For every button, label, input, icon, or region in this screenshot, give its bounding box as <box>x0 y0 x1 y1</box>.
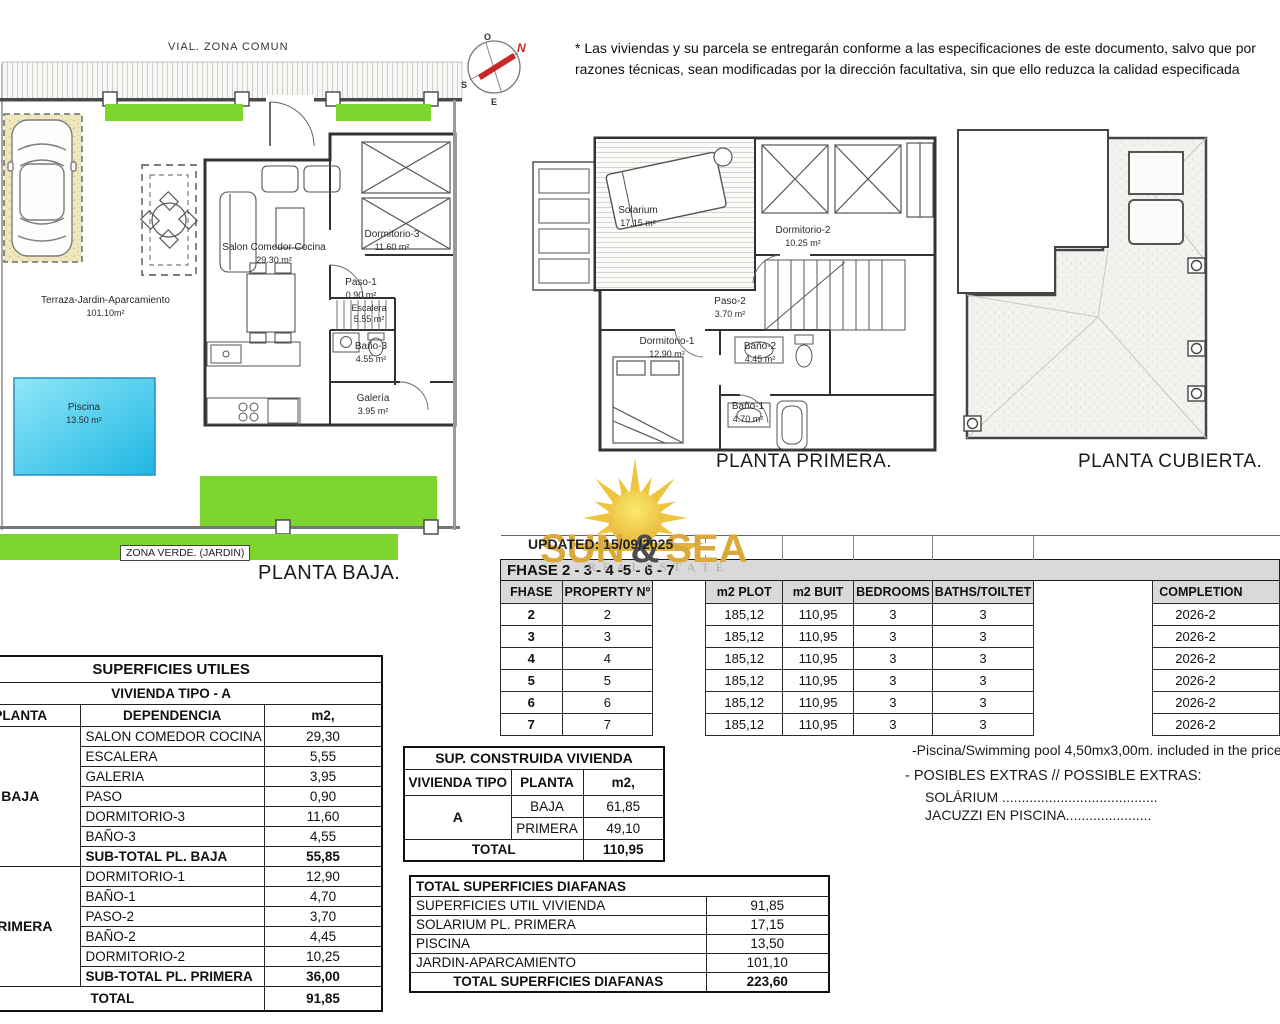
su-val: 10,25 <box>264 946 382 966</box>
su-val: 4,45 <box>264 926 382 946</box>
cell-fhase: 3 <box>501 626 563 648</box>
compass-o: O <box>484 32 491 42</box>
cell-built: 110,95 <box>783 692 854 714</box>
su-dep: BAÑO-2 <box>80 926 264 946</box>
car-icon <box>8 120 76 256</box>
phase-row: 3 3 185,12 110,95 3 3 2026-2 <box>501 626 1280 648</box>
plot-boundary-right <box>453 100 456 530</box>
cell-fhase: 7 <box>501 714 563 736</box>
su-dep: DORMITORIO-1 <box>80 866 264 886</box>
di-val: 13,50 <box>706 934 829 953</box>
green-strip-right <box>336 104 431 121</box>
sc-val: 49,10 <box>583 817 664 839</box>
cell-plot: 185,12 <box>706 714 783 736</box>
sc-total-label: TOTAL <box>404 839 583 861</box>
phase-row: 4 4 185,12 110,95 3 3 2026-2 <box>501 648 1280 670</box>
sc-header-row: VIVIENDA TIPO PLANTA m2, <box>404 769 664 795</box>
col-header-property: PROPERTY Nº <box>562 581 653 604</box>
disclaimer-line-2: razones técnicas, sean modificadas por l… <box>575 59 1280 80</box>
room-label-bano2: Baño-2 4.45 m² <box>722 341 798 365</box>
plan-sheet: * Las viviendas y su parcela se entregar… <box>0 0 1280 1024</box>
cell-baths: 3 <box>932 648 1034 670</box>
cell-completion: 2026-2 <box>1153 692 1280 714</box>
room-label-bano1: Baño-1 4.70 m² <box>712 401 784 425</box>
sc-col-m2: m2, <box>583 769 664 795</box>
sc-total-row: TOTAL 110,95 <box>404 839 664 861</box>
su-val: 0,90 <box>264 786 382 806</box>
col-header-built: m2 BUIT <box>783 581 854 604</box>
updated-date: UPDATED: 15/09/2025 <box>528 536 673 552</box>
su-dep: PASO <box>80 786 264 806</box>
cell-fhase: 5 <box>501 670 563 692</box>
skylight-1 <box>1129 152 1183 194</box>
diafanas-table: TOTAL SUPERFICIES DIAFANAS SUPERFICIES U… <box>409 875 830 993</box>
di-label: SUPERFICIES UTIL VIVIENDA <box>410 896 706 915</box>
logo-subtitle: R E A L E S T A T E <box>588 560 725 574</box>
room-label-dorm3: Dormitorio-3 11.60 m² <box>342 229 442 253</box>
su-dep: ESCALERA <box>80 746 264 766</box>
phase-row: 2 2 185,12 110,95 3 3 2026-2 <box>501 604 1280 626</box>
planta-cubierta-title: PLANTA CUBIERTA. <box>1078 451 1262 473</box>
cell-bedrooms: 3 <box>854 670 933 692</box>
front-wall <box>0 98 462 102</box>
su-dep: GALERIA <box>80 766 264 786</box>
room-label-escalera: Escalera 5.55 m² <box>336 303 402 326</box>
su-total-val: 91,85 <box>264 986 382 1011</box>
cell-baths: 3 <box>932 670 1034 692</box>
compass-icon: O N S E <box>461 32 526 107</box>
su-subtotal-val: 55,85 <box>264 846 382 866</box>
di-title: TOTAL SUPERFICIES DIAFANAS <box>410 876 829 896</box>
compass-needle <box>478 53 516 80</box>
su-total-label: TOTAL <box>0 986 264 1011</box>
room-label-piscina: Piscina 13.50 m² <box>39 402 129 426</box>
room-label-dorm2: Dormitorio-2 10.25 m² <box>748 225 858 249</box>
cell-built: 110,95 <box>783 604 854 626</box>
zona-verde-label: ZONA VERDE. (JARDIN) <box>120 545 250 561</box>
col-header-bedrooms: BEDROOMS <box>854 581 933 604</box>
cell-plot: 185,12 <box>706 648 783 670</box>
cell-property: 5 <box>562 670 653 692</box>
cell-plot: 185,12 <box>706 670 783 692</box>
room-label-paso2: Paso-2 3.70 m² <box>695 296 765 320</box>
disclaimer-line-1: * Las viviendas y su parcela se entregar… <box>575 38 1280 59</box>
cell-fhase: 6 <box>501 692 563 714</box>
su-val: 29,30 <box>264 726 382 746</box>
su-row: PRIMERA DORMITORIO-1 12,90 <box>0 866 382 886</box>
di-label: SOLARIUM PL. PRIMERA <box>410 915 706 934</box>
room-label-paso1: Paso-1 0.90 m² <box>325 277 397 301</box>
note-extras: - POSIBLES EXTRAS // POSSIBLE EXTRAS: <box>905 768 1202 784</box>
su-dep: DORMITORIO-2 <box>80 946 264 966</box>
su-val: 4,70 <box>264 886 382 906</box>
cell-property: 6 <box>562 692 653 714</box>
cell-bedrooms: 3 <box>854 692 933 714</box>
compass-s: S <box>461 80 467 90</box>
cell-built: 110,95 <box>783 626 854 648</box>
sun-and-sea-logo: SUN&SEA R E A L E S T A T E <box>528 446 750 572</box>
sup-construida-table: SUP. CONSTRUIDA VIVIENDA VIVIENDA TIPO P… <box>403 746 665 862</box>
cell-completion: 2026-2 <box>1153 648 1280 670</box>
green-area-large <box>200 476 437 526</box>
cell-built: 110,95 <box>783 670 854 692</box>
su-dep: BAÑO-1 <box>80 886 264 906</box>
su-col-dependencia: DEPENDENCIA <box>80 704 264 726</box>
di-val: 91,85 <box>706 896 829 915</box>
pergola-table <box>141 165 197 275</box>
su-val: 5,55 <box>264 746 382 766</box>
col-header-completion: COMPLETION <box>1153 581 1280 604</box>
rear-post-2 <box>424 520 438 534</box>
sc-col-tipo: VIVIENDA TIPO <box>404 769 511 795</box>
su-val: 4,55 <box>264 826 382 846</box>
sc-tipo-a: A <box>404 795 511 839</box>
di-label: JARDIN-APARCAMIENTO <box>410 953 706 972</box>
sc-val: 61,85 <box>583 795 664 817</box>
planta-baja-title: PLANTA BAJA. <box>258 562 400 585</box>
solarium-ball <box>714 148 732 166</box>
di-total-val: 223,60 <box>706 972 829 992</box>
gate-opening <box>266 95 314 105</box>
di-total-label: TOTAL SUPERFICIES DIAFANAS <box>410 972 706 992</box>
disclaimer-text: * Las viviendas y su parcela se entregar… <box>575 38 1280 80</box>
cell-fhase: 4 <box>501 648 563 670</box>
rear-fence <box>0 526 460 529</box>
note-solarium: SOLÁRIUM ...............................… <box>925 789 1158 805</box>
cell-completion: 2026-2 <box>1153 626 1280 648</box>
su-dep: DORMITORIO-3 <box>80 806 264 826</box>
cell-bedrooms: 3 <box>854 626 933 648</box>
su-dep: BAÑO-3 <box>80 826 264 846</box>
compass-e: E <box>491 97 497 107</box>
sc-col-planta: PLANTA <box>511 769 583 795</box>
cell-plot: 185,12 <box>706 604 783 626</box>
cell-baths: 3 <box>932 692 1034 714</box>
col-header-fhase: FHASE <box>501 581 563 604</box>
green-strip-left <box>105 104 243 121</box>
room-label-terraza: Terraza-Jardin-Aparcamiento 101.10m² <box>33 295 178 319</box>
cell-plot: 185,12 <box>706 626 783 648</box>
di-val: 17,15 <box>706 915 829 934</box>
phase-row: 5 5 185,12 110,95 3 3 2026-2 <box>501 670 1280 692</box>
room-label-bano3: Baño-3 4.55 m² <box>338 341 404 365</box>
phase-row: 6 6 185,12 110,95 3 3 2026-2 <box>501 692 1280 714</box>
compass-n: N <box>517 41 526 55</box>
vial-zona-comun-label: VIAL. ZONA COMUN <box>168 41 289 53</box>
planta-cubierta-drawing <box>948 112 1240 462</box>
cell-plot: 185,12 <box>706 692 783 714</box>
room-label-galeria: Galería 3.95 m² <box>340 393 406 417</box>
superficies-utiles-table: SUPERFICIES UTILES VIVIENDA TIPO - A PLA… <box>0 655 383 1012</box>
su-planta-baja: BAJA <box>0 726 80 866</box>
su-subtotal-label: SUB-TOTAL PL. PRIMERA <box>80 966 264 986</box>
su-title: SUPERFICIES UTILES <box>0 656 382 682</box>
su-col-planta: PLANTA <box>0 704 80 726</box>
note-pool: -Piscina/Swimming pool 4,50mx3,00m. incl… <box>912 742 1280 758</box>
cell-baths: 3 <box>932 714 1034 736</box>
skylight-2 <box>1129 200 1183 244</box>
su-val: 3,95 <box>264 766 382 786</box>
room-label-solarium: Solarium 17.15 m² <box>593 205 683 229</box>
sc-total-val: 110,95 <box>583 839 664 861</box>
di-row: PISCINA 13,50 <box>410 934 829 953</box>
su-header-row: PLANTA DEPENDENCIA m2, <box>0 704 382 726</box>
cell-fhase: 2 <box>501 604 563 626</box>
cell-completion: 2026-2 <box>1153 604 1280 626</box>
su-planta-primera: PRIMERA <box>0 866 80 986</box>
pool <box>14 378 155 475</box>
cell-property: 2 <box>562 604 653 626</box>
balcony-louvers <box>533 162 595 290</box>
cell-property: 4 <box>562 648 653 670</box>
di-val: 101,10 <box>706 953 829 972</box>
su-val: 11,60 <box>264 806 382 826</box>
sc-planta: PRIMERA <box>511 817 583 839</box>
su-val: 3,70 <box>264 906 382 926</box>
cell-baths: 3 <box>932 604 1034 626</box>
room-label-dorm1: Dormitorio-1 12.90 m² <box>612 336 722 360</box>
di-row: SUPERFICIES UTIL VIVIENDA 91,85 <box>410 896 829 915</box>
di-row: JARDIN-APARCAMIENTO 101,10 <box>410 953 829 972</box>
cell-bedrooms: 3 <box>854 648 933 670</box>
su-subtitle: VIVIENDA TIPO - A <box>0 682 382 704</box>
cell-completion: 2026-2 <box>1153 670 1280 692</box>
gate-swing-arc <box>270 102 314 146</box>
sc-row: A BAJA 61,85 <box>404 795 664 817</box>
cell-baths: 3 <box>932 626 1034 648</box>
cell-completion: 2026-2 <box>1153 714 1280 736</box>
cell-property: 3 <box>562 626 653 648</box>
cell-bedrooms: 3 <box>854 604 933 626</box>
su-dep: PASO-2 <box>80 906 264 926</box>
cell-bedrooms: 3 <box>854 714 933 736</box>
sc-planta: BAJA <box>511 795 583 817</box>
su-total-row: TOTAL 91,85 <box>0 986 382 1011</box>
col-header-baths: BATHS/TOILTET <box>932 581 1034 604</box>
di-label: PISCINA <box>410 934 706 953</box>
col-header-plot: m2 PLOT <box>706 581 783 604</box>
room-label-salon: Salon Comedor Cocina 29.30 m² <box>215 242 333 266</box>
road-hatch <box>2 62 462 100</box>
su-col-m2: m2, <box>264 704 382 726</box>
di-row: SOLARIUM PL. PRIMERA 17,15 <box>410 915 829 934</box>
su-subtotal-label: SUB-TOTAL PL. BAJA <box>80 846 264 866</box>
su-subtotal-val: 36,00 <box>264 966 382 986</box>
cell-built: 110,95 <box>783 648 854 670</box>
phase-header-row: FHASE PROPERTY Nº m2 PLOT m2 BUIT BEDROO… <box>501 581 1280 604</box>
phase-row: 7 7 185,12 110,95 3 3 2026-2 <box>501 714 1280 736</box>
sc-title: SUP. CONSTRUIDA VIVIENDA <box>404 747 664 769</box>
su-val: 12,90 <box>264 866 382 886</box>
note-jacuzzi: JACUZZI EN PISCINA...................... <box>925 807 1151 823</box>
su-row: BAJA SALON COMEDOR COCINA 29,30 <box>0 726 382 746</box>
su-dep: SALON COMEDOR COCINA <box>80 726 264 746</box>
di-total-row: TOTAL SUPERFICIES DIAFANAS 223,60 <box>410 972 829 992</box>
rear-post-1 <box>276 520 290 534</box>
cell-property: 7 <box>562 714 653 736</box>
cell-built: 110,95 <box>783 714 854 736</box>
